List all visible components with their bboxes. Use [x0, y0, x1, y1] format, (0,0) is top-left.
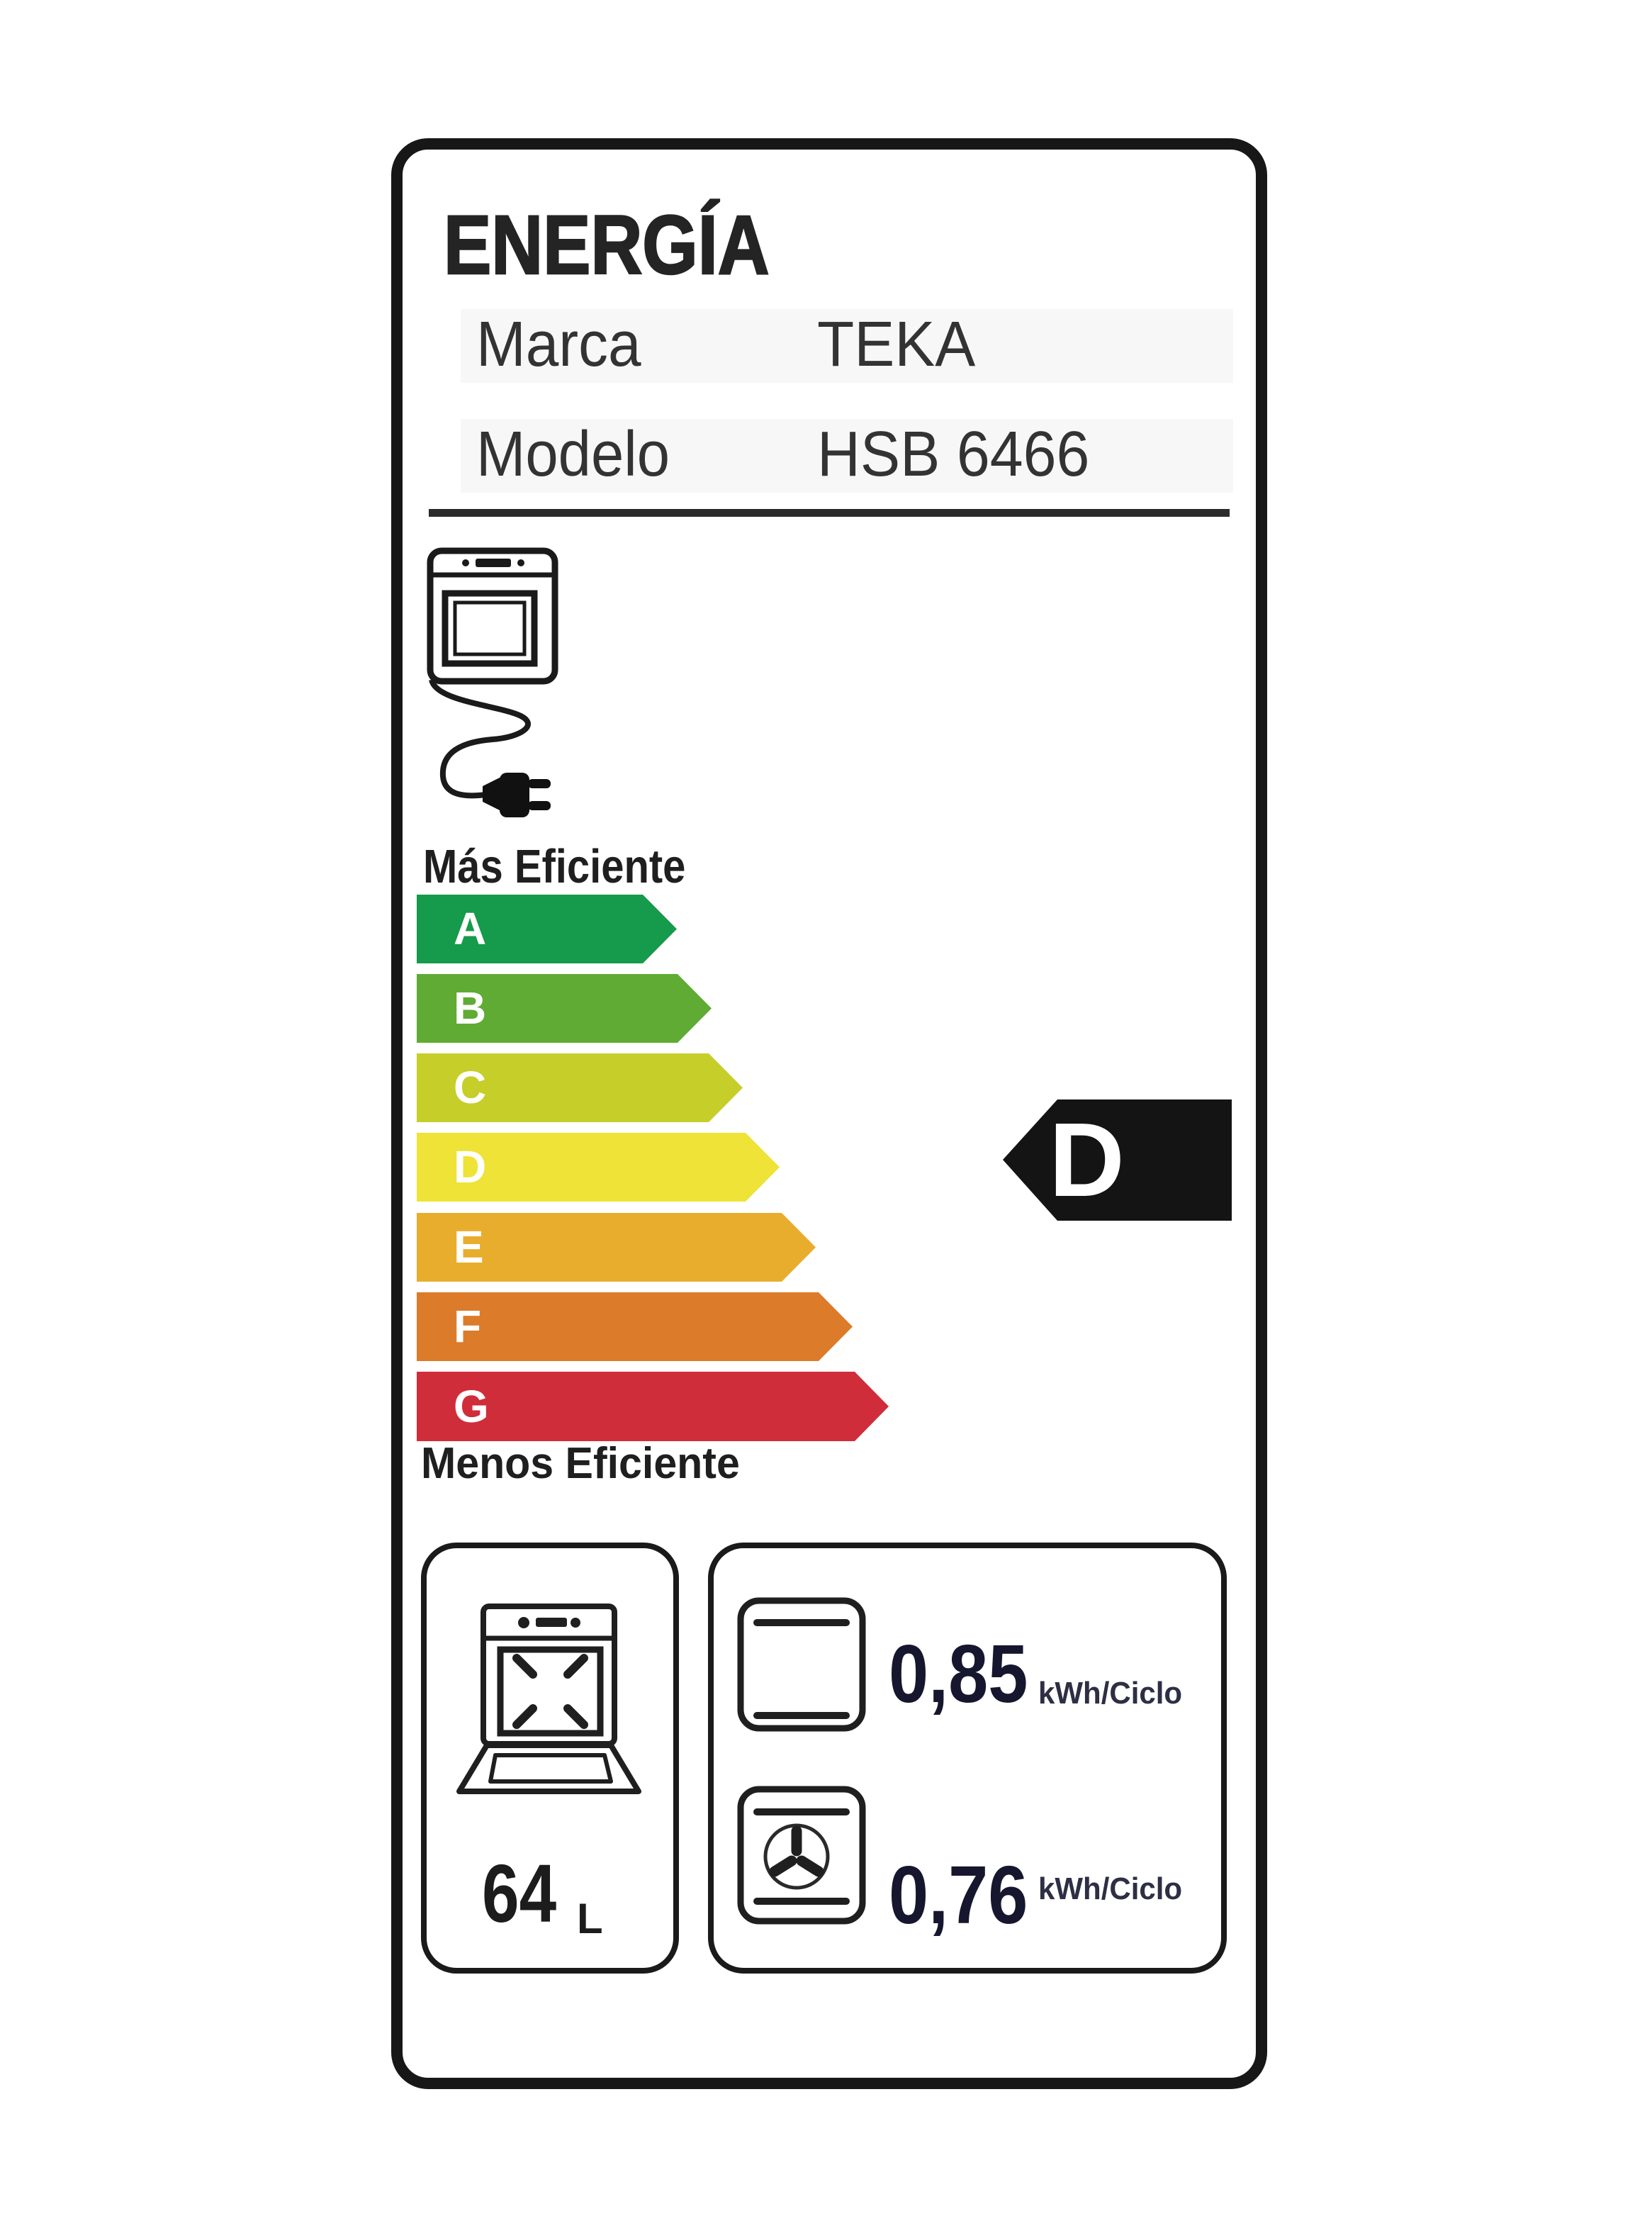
svg-text:B: B [454, 983, 486, 1034]
svg-text:G: G [454, 1381, 489, 1432]
svg-text:D: D [1049, 1102, 1125, 1219]
svg-text:F: F [454, 1301, 481, 1352]
svg-text:E: E [454, 1221, 484, 1272]
svg-text:C: C [454, 1062, 486, 1113]
svg-text:A: A [454, 903, 486, 954]
svg-text:D: D [454, 1141, 486, 1192]
